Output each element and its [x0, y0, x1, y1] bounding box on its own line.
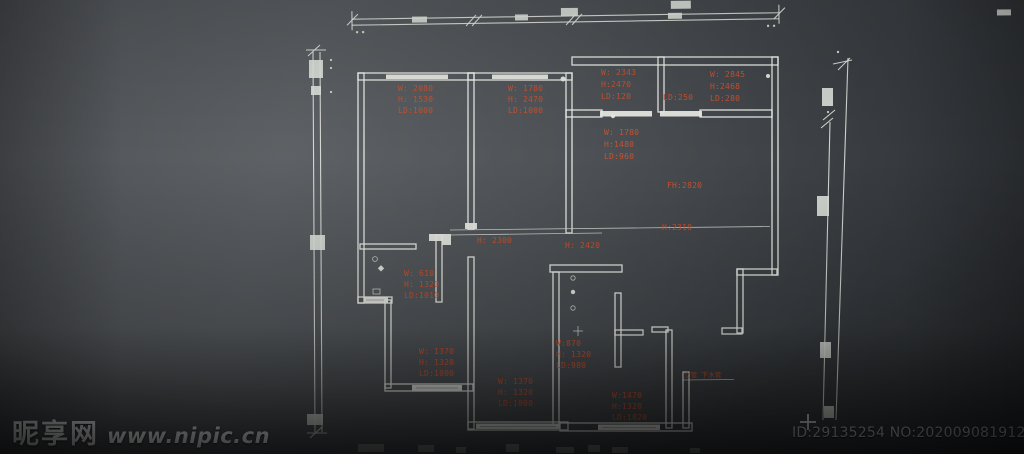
bottom-dimension-text-blobs — [358, 444, 700, 453]
watermark: 昵享网 www.nipic.cn — [12, 412, 270, 451]
top-dimension-line — [347, 0, 1011, 33]
photographed-cad-screen: W: 2080 H: 1530 LD:1000 W: 1780 H: 2470 … — [0, 0, 1024, 454]
corridor-height-label: H: 2420 — [565, 241, 600, 250]
window-label-2-ld: LD:120 — [601, 92, 631, 101]
window-label-0-ld: LD:1000 — [398, 106, 433, 115]
window-label-4-ld: LD:960 — [604, 152, 634, 161]
window-label-2-w: W: 2343 — [601, 68, 636, 77]
window-label-8-h: H: 1320 — [556, 350, 591, 359]
window-label-1-w: W: 1780 — [508, 84, 543, 93]
window-label-5-h: H: 1320 — [404, 280, 439, 289]
window-label-8-ld: LD:980 — [556, 361, 586, 370]
floor-plan-drawing: W: 2080 H: 1530 LD:1000 W: 1780 H: 2470 … — [0, 0, 1024, 454]
window-label-3-h: H:2468 — [710, 82, 740, 91]
window-label-3-ld: LD:280 — [710, 94, 740, 103]
window-label-5-w: W: 610 — [404, 269, 434, 278]
watermark-site-url: www.nipic.cn — [107, 424, 270, 448]
window-label-7-h: H: 1320 — [498, 388, 533, 397]
right-dimension-lines — [817, 51, 852, 420]
window-label-6-h: H: 1320 — [419, 358, 454, 367]
window-label-0-w: W: 2080 — [398, 84, 433, 93]
door-height-label: H: 2300 — [477, 236, 512, 245]
window-label-8-w: W:870 — [556, 339, 581, 348]
window-label-9-w: W:1470 — [612, 391, 642, 400]
window-label-3-w: W: 2845 — [710, 70, 745, 79]
window-label-9-h: H:1320 — [612, 402, 642, 411]
window-label-7-ld: LD:1000 — [498, 399, 533, 408]
pipe-note-label: 立管 下水管 — [684, 370, 722, 379]
window-label-1-ld: LD:1000 — [508, 106, 543, 115]
beam-height-label: H:2310 — [662, 223, 692, 232]
window-label-7-w: W: 1370 — [498, 377, 533, 386]
window-label-9-ld: LD:1020 — [612, 413, 647, 422]
window-label-4-w: W: 1780 — [604, 128, 639, 137]
window-label-6-w: W: 1370 — [419, 347, 454, 356]
floor-height-label: FH:2820 — [667, 181, 702, 190]
window-label-5-ld: LD:1010 — [404, 291, 439, 300]
window-label-6-ld: LD:1000 — [419, 369, 454, 378]
window-label-4-h: H:1480 — [604, 140, 634, 149]
window-label-1-h: H: 2470 — [508, 95, 543, 104]
window-label-2-h: H:2470 — [601, 80, 631, 89]
sill-label: LD:250 — [663, 93, 693, 102]
left-dimension-line — [306, 45, 332, 438]
window-label-0-h: H: 1530 — [398, 95, 433, 104]
image-id-label: ID:29135254 NO:20200908191236177754 — [792, 425, 1024, 441]
watermark-site-name: 昵享网 — [12, 412, 99, 451]
